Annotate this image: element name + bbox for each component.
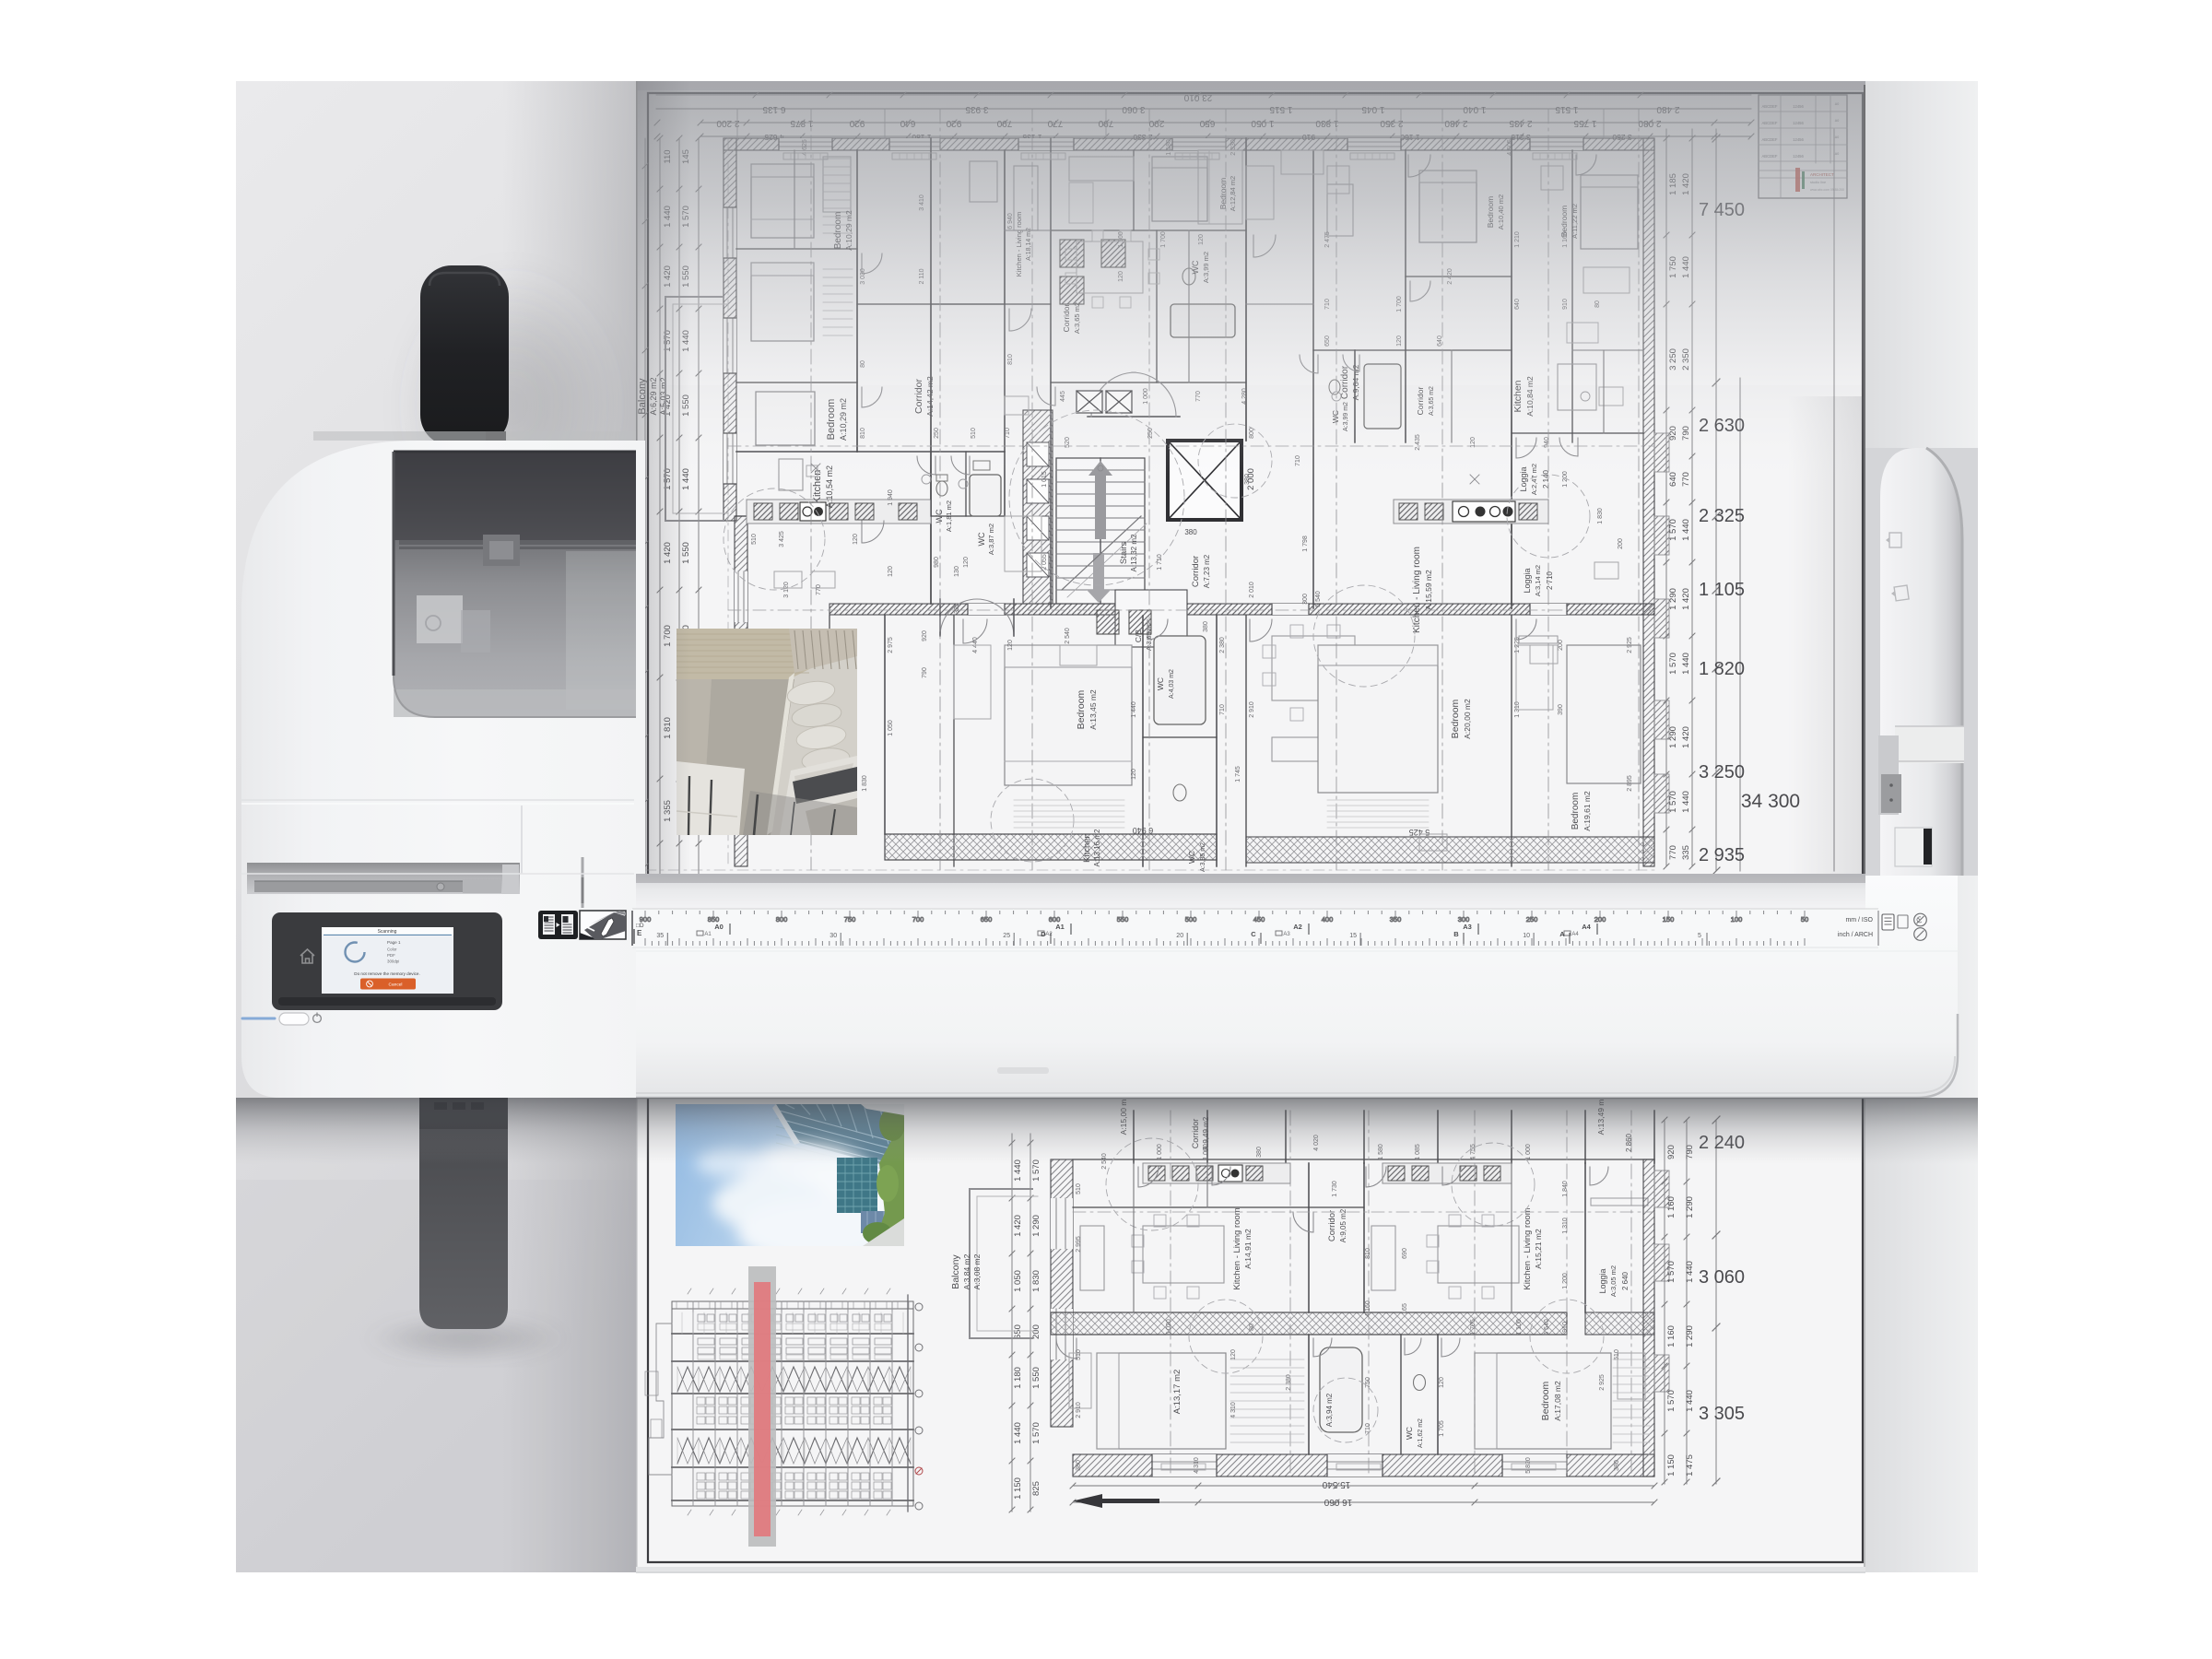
svg-text:1 420: 1 420 bbox=[1013, 1215, 1023, 1237]
svg-text:1 050: 1 050 bbox=[888, 720, 894, 736]
svg-text:710: 710 bbox=[1365, 1423, 1371, 1434]
svg-text:Bedroom: Bedroom bbox=[1540, 1381, 1551, 1420]
svg-text:1 160: 1 160 bbox=[1666, 1325, 1677, 1347]
svg-text:200: 200 bbox=[1618, 538, 1624, 549]
svg-text:5 820: 5 820 bbox=[1525, 1457, 1532, 1474]
svg-text:A2: A2 bbox=[1045, 932, 1053, 937]
svg-text:500: 500 bbox=[1185, 915, 1197, 924]
svg-text:inch / ARCH: inch / ARCH bbox=[1838, 932, 1873, 938]
svg-text:750: 750 bbox=[1365, 1377, 1371, 1388]
svg-text:120: 120 bbox=[1230, 1349, 1237, 1360]
svg-text:Cancel: Cancel bbox=[389, 982, 403, 988]
svg-text:1 440: 1 440 bbox=[1681, 653, 1691, 675]
svg-text:1 100: 1 100 bbox=[1516, 1319, 1523, 1335]
svg-text:120: 120 bbox=[888, 566, 894, 577]
svg-text:16 060: 16 060 bbox=[1324, 1497, 1352, 1507]
svg-text:120: 120 bbox=[1007, 640, 1014, 651]
svg-text:390: 390 bbox=[1558, 704, 1564, 715]
svg-text:2 935: 2 935 bbox=[1699, 845, 1745, 865]
svg-text:120: 120 bbox=[1131, 769, 1137, 780]
svg-text:A:7,23 m2: A:7,23 m2 bbox=[1203, 554, 1211, 588]
svg-text:D: D bbox=[1041, 930, 1046, 938]
svg-text:Bedroom: Bedroom bbox=[1450, 699, 1461, 738]
svg-text:1 570: 1 570 bbox=[1668, 791, 1678, 813]
svg-text:2 925: 2 925 bbox=[1599, 1374, 1606, 1391]
svg-text:120: 120 bbox=[853, 534, 859, 545]
svg-text:A:1,62 m2: A:1,62 m2 bbox=[1418, 1418, 1424, 1448]
svg-text:920: 920 bbox=[922, 630, 928, 641]
svg-text:810: 810 bbox=[1365, 1248, 1371, 1259]
svg-text:A4: A4 bbox=[1582, 923, 1591, 931]
svg-text:770: 770 bbox=[816, 584, 822, 595]
svg-text:WC: WC bbox=[1187, 851, 1196, 864]
svg-text:4 310: 4 310 bbox=[1194, 1457, 1200, 1474]
svg-text:380: 380 bbox=[1076, 1460, 1082, 1471]
svg-text:A0: A0 bbox=[714, 923, 724, 931]
svg-text:Loggia: Loggia bbox=[1523, 568, 1532, 593]
svg-text:5: 5 bbox=[1698, 933, 1701, 939]
svg-text:750: 750 bbox=[844, 915, 856, 924]
svg-text:650: 650 bbox=[1013, 1324, 1023, 1339]
svg-text:A:17,08 m2: A:17,08 m2 bbox=[1553, 1381, 1562, 1421]
svg-text:WC: WC bbox=[1156, 677, 1165, 690]
svg-text:2 710: 2 710 bbox=[1546, 571, 1554, 590]
svg-text:□D: □D bbox=[636, 923, 644, 929]
svg-text:E: E bbox=[637, 929, 642, 937]
svg-text:80: 80 bbox=[1249, 1324, 1255, 1331]
svg-text:120: 120 bbox=[963, 557, 970, 568]
svg-text:2 975: 2 975 bbox=[888, 637, 894, 653]
svg-text:Kitchen - Living room: Kitchen - Living room bbox=[1523, 1207, 1533, 1289]
svg-text:1 830: 1 830 bbox=[1597, 508, 1604, 524]
svg-text:2 380: 2 380 bbox=[1219, 637, 1226, 653]
svg-text:1 310: 1 310 bbox=[1562, 1218, 1569, 1234]
svg-text:A:15,21 m2: A:15,21 m2 bbox=[1534, 1229, 1543, 1269]
svg-text:1 440: 1 440 bbox=[1681, 791, 1691, 813]
svg-text:3 120: 3 120 bbox=[783, 582, 790, 598]
svg-text:A4: A4 bbox=[1571, 932, 1579, 937]
svg-text:550: 550 bbox=[1117, 915, 1129, 924]
svg-text:325: 325 bbox=[954, 603, 960, 614]
svg-text:165: 165 bbox=[1402, 1303, 1408, 1314]
svg-text:790: 790 bbox=[922, 667, 928, 678]
svg-text:1 570: 1 570 bbox=[1668, 519, 1678, 541]
svg-text:1 105: 1 105 bbox=[1699, 580, 1745, 600]
svg-text:1 290: 1 290 bbox=[1668, 726, 1678, 748]
svg-text:380: 380 bbox=[1614, 1460, 1620, 1471]
svg-text:1 440: 1 440 bbox=[1013, 1422, 1023, 1444]
svg-text:2 995: 2 995 bbox=[1076, 1236, 1082, 1253]
svg-text:1 050: 1 050 bbox=[1013, 1270, 1023, 1292]
svg-text:1 820: 1 820 bbox=[1699, 659, 1745, 679]
svg-text:300dpi: 300dpi bbox=[387, 959, 399, 964]
svg-text:510: 510 bbox=[1076, 1183, 1082, 1194]
svg-text:Kitchen - Living room: Kitchen - Living room bbox=[1232, 1207, 1242, 1289]
svg-text:2 540: 2 540 bbox=[1065, 628, 1071, 644]
svg-text:3 425: 3 425 bbox=[779, 531, 785, 547]
svg-text:A3: A3 bbox=[1283, 932, 1290, 937]
svg-text:1 420: 1 420 bbox=[1681, 726, 1691, 748]
svg-text:A:13,32 m2: A:13,32 m2 bbox=[1130, 534, 1138, 571]
svg-text:3 250: 3 250 bbox=[1699, 762, 1745, 782]
svg-text:A:3,94 m2: A:3,94 m2 bbox=[1325, 1393, 1334, 1427]
svg-text:800: 800 bbox=[776, 915, 788, 924]
svg-text:2 925: 2 925 bbox=[1627, 637, 1633, 653]
svg-text:770: 770 bbox=[1668, 845, 1678, 860]
svg-text:400: 400 bbox=[1322, 915, 1334, 924]
svg-text:1 570: 1 570 bbox=[1668, 653, 1678, 675]
svg-text:A:3,87 m2: A:3,87 m2 bbox=[987, 524, 995, 555]
svg-text:4 310: 4 310 bbox=[1230, 1402, 1237, 1418]
svg-text:1 150: 1 150 bbox=[1666, 1454, 1677, 1477]
svg-text:Do not remove the memory devic: Do not remove the memory device. bbox=[354, 971, 420, 976]
svg-text:1 440: 1 440 bbox=[1685, 1390, 1695, 1412]
svg-text:20: 20 bbox=[1176, 933, 1183, 939]
svg-text:2 910: 2 910 bbox=[1249, 701, 1255, 718]
svg-text:1 730: 1 730 bbox=[1332, 1181, 1338, 1197]
svg-text:A:9,05 m2: A:9,05 m2 bbox=[1339, 1208, 1347, 1242]
svg-text:2 640: 2 640 bbox=[1621, 1271, 1630, 1290]
svg-text:PDF: PDF bbox=[387, 953, 395, 958]
svg-text:450: 450 bbox=[1253, 915, 1265, 924]
svg-text:1 745: 1 745 bbox=[1235, 766, 1241, 782]
svg-text:5 540: 5 540 bbox=[1544, 1319, 1550, 1335]
svg-text:1 570: 1 570 bbox=[1031, 1422, 1041, 1444]
svg-text:WC: WC bbox=[1405, 1427, 1414, 1440]
svg-text:30: 30 bbox=[829, 933, 837, 939]
svg-text:690: 690 bbox=[1402, 1248, 1408, 1259]
svg-text:2 010: 2 010 bbox=[1249, 582, 1255, 598]
svg-text:A:4,03 m2: A:4,03 m2 bbox=[1169, 669, 1175, 699]
svg-text:1 420: 1 420 bbox=[1681, 588, 1691, 610]
svg-text:Scanning: Scanning bbox=[378, 929, 397, 935]
svg-text:A: A bbox=[1559, 930, 1565, 938]
svg-text:A:3,08 m2: A:3,08 m2 bbox=[972, 1253, 982, 1289]
svg-text:1 440: 1 440 bbox=[1131, 701, 1137, 718]
svg-text:700: 700 bbox=[912, 915, 924, 924]
svg-text:A:13,45 m2: A:13,45 m2 bbox=[1088, 689, 1098, 730]
svg-text:Loggia: Loggia bbox=[1598, 1268, 1607, 1293]
svg-text:3 305: 3 305 bbox=[1699, 1404, 1745, 1424]
svg-text:A1: A1 bbox=[1055, 923, 1065, 931]
svg-text:Kitchen - Living room: Kitchen - Living room bbox=[1412, 547, 1422, 633]
svg-text:A:3,05 m2: A:3,05 m2 bbox=[1609, 1265, 1618, 1297]
svg-text:1 570: 1 570 bbox=[1666, 1261, 1677, 1283]
svg-text:4 160: 4 160 bbox=[1365, 1300, 1371, 1317]
svg-text:A:20,00 m2: A:20,00 m2 bbox=[1463, 699, 1472, 739]
svg-text:2 380: 2 380 bbox=[1286, 1374, 1292, 1391]
svg-text:A:19,61 m2: A:19,61 m2 bbox=[1583, 791, 1592, 831]
svg-text:A1: A1 bbox=[704, 932, 712, 937]
svg-text:A:13,17 m2: A:13,17 m2 bbox=[1172, 1370, 1182, 1415]
svg-text:350: 350 bbox=[1390, 915, 1402, 924]
svg-text:1 475: 1 475 bbox=[1685, 1454, 1695, 1477]
svg-text:Bedroom: Bedroom bbox=[1076, 689, 1087, 729]
svg-text:1 290: 1 290 bbox=[1031, 1215, 1041, 1237]
svg-text:825: 825 bbox=[1031, 1481, 1041, 1496]
svg-text:Color: Color bbox=[387, 947, 397, 952]
svg-text:A:15,59 m2: A:15,59 m2 bbox=[1424, 570, 1433, 610]
svg-text:1 290: 1 290 bbox=[1668, 588, 1678, 610]
svg-text:Stairs: Stairs bbox=[1119, 542, 1129, 565]
svg-text:15 540: 15 540 bbox=[1322, 1479, 1350, 1489]
svg-text:WC: WC bbox=[977, 532, 986, 546]
svg-text:120: 120 bbox=[1439, 1377, 1445, 1388]
svg-text:200: 200 bbox=[1558, 640, 1564, 651]
svg-text:2 325: 2 325 bbox=[1699, 506, 1745, 526]
svg-text:1 705: 1 705 bbox=[1470, 1319, 1477, 1335]
svg-text:100: 100 bbox=[1731, 915, 1743, 924]
svg-text:Corridor: Corridor bbox=[1327, 1210, 1337, 1241]
svg-text:50: 50 bbox=[1801, 915, 1808, 924]
svg-text:Bedroom: Bedroom bbox=[1571, 793, 1581, 830]
svg-text:510: 510 bbox=[751, 534, 758, 545]
svg-text:5 020: 5 020 bbox=[1166, 1319, 1172, 1335]
svg-text:1 440: 1 440 bbox=[1681, 519, 1691, 541]
svg-text:2 895: 2 895 bbox=[1627, 775, 1633, 792]
svg-text:300: 300 bbox=[1302, 594, 1309, 605]
svg-text:380: 380 bbox=[1184, 528, 1197, 536]
svg-text:3 060: 3 060 bbox=[1699, 1267, 1745, 1288]
svg-text:130: 130 bbox=[954, 566, 960, 577]
svg-text:B: B bbox=[1453, 930, 1459, 938]
svg-text:1 710: 1 710 bbox=[1157, 554, 1163, 571]
svg-text:1 570: 1 570 bbox=[1666, 1390, 1677, 1412]
svg-text:380: 380 bbox=[1203, 621, 1209, 632]
svg-text:1 830: 1 830 bbox=[1031, 1270, 1041, 1292]
svg-text:650: 650 bbox=[981, 915, 993, 924]
svg-text:150: 150 bbox=[1663, 915, 1675, 924]
svg-text:25: 25 bbox=[1003, 933, 1010, 939]
svg-text:1 290: 1 290 bbox=[1685, 1325, 1695, 1347]
svg-text:335: 335 bbox=[1681, 845, 1691, 860]
svg-text:710: 710 bbox=[1219, 704, 1226, 715]
svg-text:1 200: 1 200 bbox=[1562, 1273, 1569, 1289]
svg-text:A2: A2 bbox=[1293, 923, 1302, 931]
svg-text:1 830: 1 830 bbox=[862, 775, 868, 792]
svg-text:35: 35 bbox=[656, 933, 664, 939]
svg-text:A3: A3 bbox=[1463, 923, 1472, 931]
svg-text:1 290: 1 290 bbox=[1685, 1196, 1695, 1218]
svg-text:1 550: 1 550 bbox=[1031, 1367, 1041, 1389]
svg-text:A:14,91 m2: A:14,91 m2 bbox=[1243, 1229, 1253, 1269]
svg-text:200: 200 bbox=[1031, 1324, 1041, 1339]
svg-text:Kitchen: Kitchen bbox=[1082, 833, 1092, 863]
svg-text:1 798: 1 798 bbox=[1302, 535, 1309, 552]
svg-text:A:13,16 m2: A:13,16 m2 bbox=[1093, 829, 1101, 866]
svg-text:Page 1: Page 1 bbox=[387, 940, 401, 945]
svg-text:1 180: 1 180 bbox=[1013, 1367, 1023, 1389]
svg-text:1 940: 1 940 bbox=[888, 489, 894, 506]
svg-text:10: 10 bbox=[1523, 933, 1530, 939]
svg-text:C: C bbox=[1251, 930, 1256, 938]
svg-text:1 160: 1 160 bbox=[1666, 1196, 1677, 1218]
svg-text:5 540: 5 540 bbox=[1315, 591, 1322, 607]
svg-text:1 150: 1 150 bbox=[1013, 1477, 1023, 1500]
svg-text:Corridor: Corridor bbox=[1191, 556, 1201, 587]
svg-text:Balcony: Balcony bbox=[950, 1254, 961, 1289]
svg-text:200: 200 bbox=[1594, 915, 1606, 924]
svg-text:6 940: 6 940 bbox=[1133, 826, 1154, 835]
svg-text:1 440: 1 440 bbox=[1685, 1261, 1695, 1283]
svg-text:250: 250 bbox=[1526, 915, 1538, 924]
svg-text:A:3,14 m2: A:3,14 m2 bbox=[1534, 565, 1542, 596]
svg-text:A:3,85 m2: A:3,85 m2 bbox=[1200, 842, 1206, 872]
svg-text:WC: WC bbox=[935, 509, 944, 523]
svg-text:1 705: 1 705 bbox=[1439, 1420, 1445, 1437]
svg-text:1 840: 1 840 bbox=[1562, 1181, 1569, 1197]
svg-text:15: 15 bbox=[1349, 933, 1357, 939]
svg-text:A:1,81 m2: A:1,81 m2 bbox=[945, 500, 953, 532]
svg-text:mm / ISO: mm / ISO bbox=[1845, 917, 1873, 924]
svg-text:910: 910 bbox=[1562, 1322, 1569, 1333]
svg-text:980: 980 bbox=[934, 557, 940, 568]
svg-text:A:3,84 m2: A:3,84 m2 bbox=[962, 1253, 971, 1289]
svg-text:2 910: 2 910 bbox=[1076, 1402, 1082, 1418]
